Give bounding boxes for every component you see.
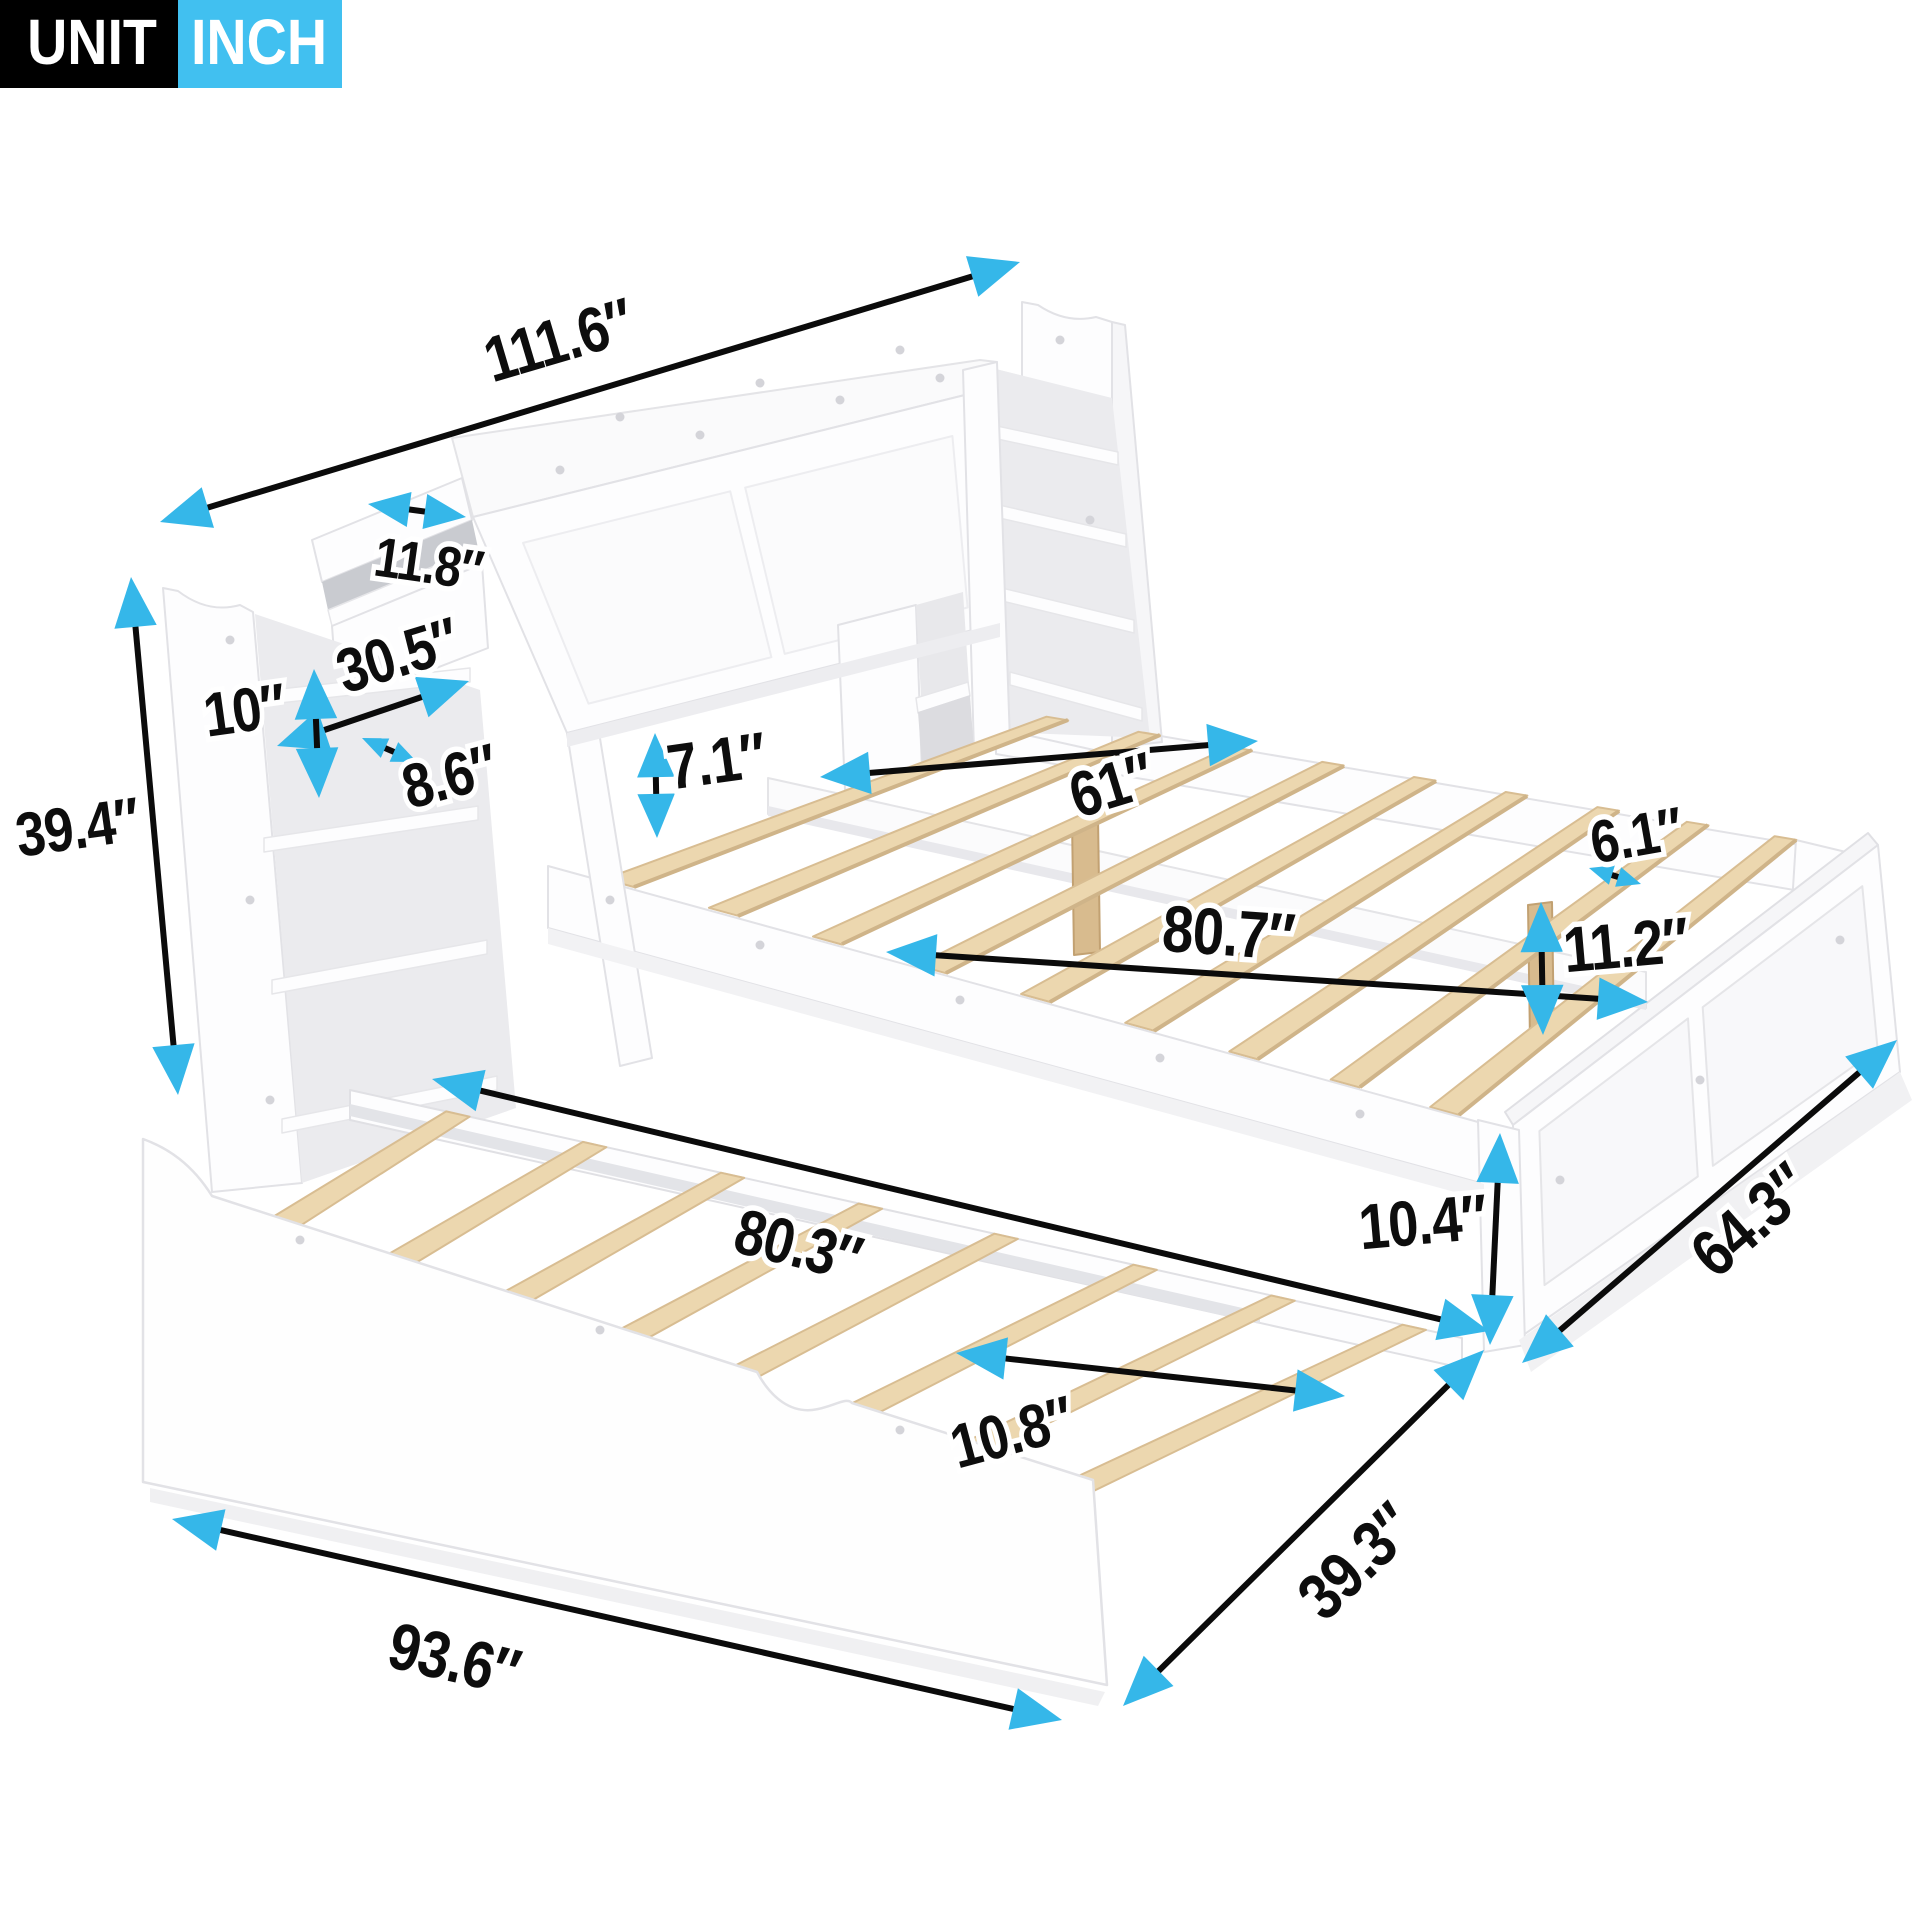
svg-text:10″: 10″ — [199, 671, 289, 751]
svg-text:INCH: INCH — [191, 6, 327, 77]
svg-text:10.4″: 10.4″ — [1356, 1180, 1490, 1263]
svg-text:UNIT: UNIT — [27, 6, 157, 77]
svg-text:80.7″: 80.7″ — [1160, 892, 1297, 974]
svg-text:11.2″: 11.2″ — [1560, 903, 1691, 986]
svg-text:7.1″: 7.1″ — [663, 718, 771, 803]
